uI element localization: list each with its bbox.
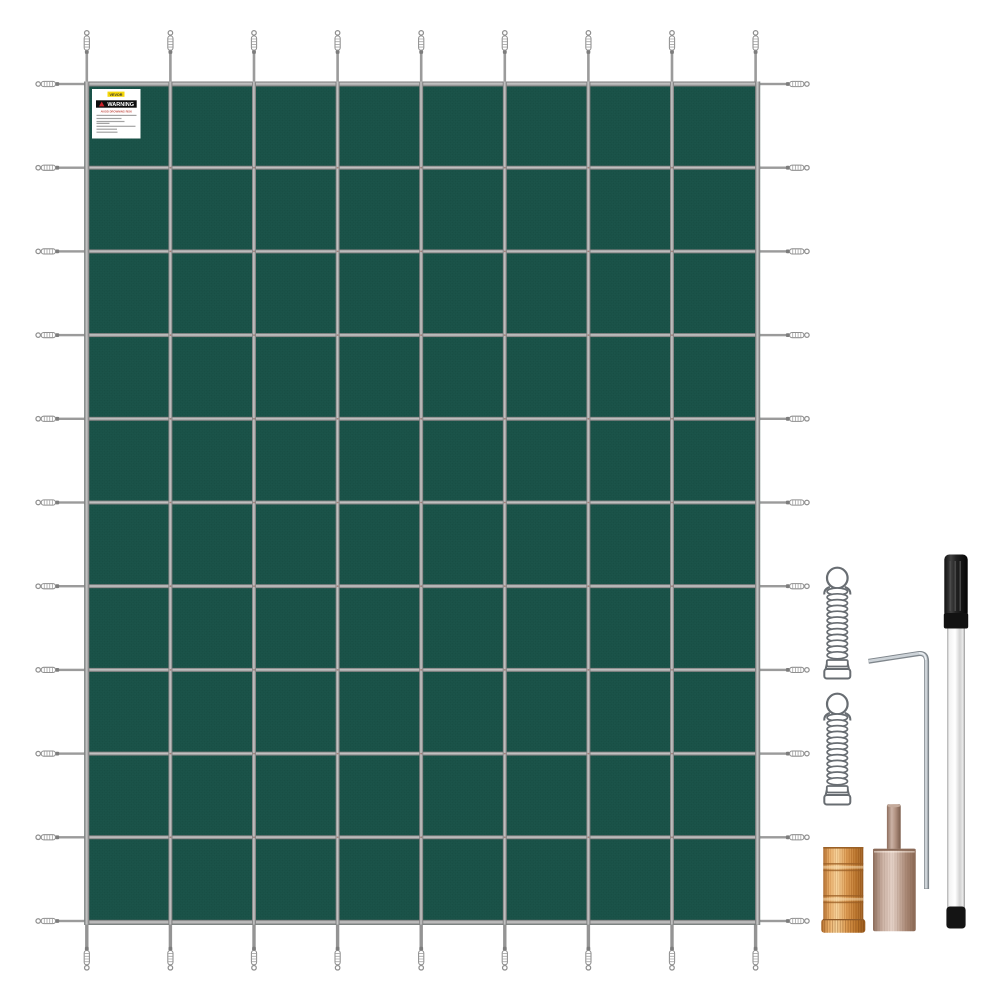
svg-text:VEVOR: VEVOR <box>110 93 123 97</box>
svg-text:WARNING: WARNING <box>107 102 134 108</box>
svg-text:AVOID DROWNING RISK: AVOID DROWNING RISK <box>101 110 133 114</box>
